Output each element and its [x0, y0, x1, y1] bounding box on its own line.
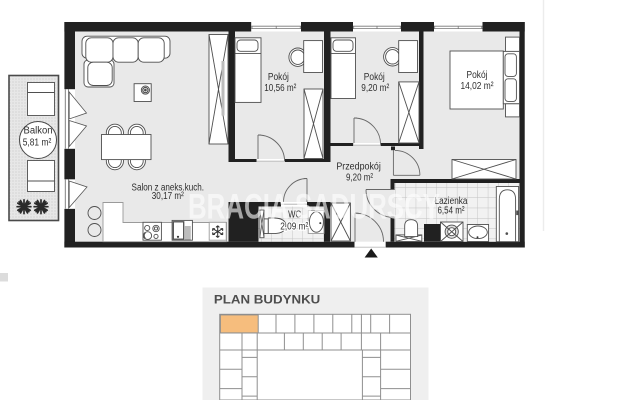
svg-text:30,17 m²: 30,17 m² [152, 191, 185, 202]
svg-text:BRACIA SADURSCY: BRACIA SADURSCY [188, 188, 440, 227]
svg-text:14,02 m²: 14,02 m² [461, 81, 495, 92]
svg-text:9,20 m²: 9,20 m² [346, 172, 374, 183]
svg-text:Pokój: Pokój [364, 72, 385, 83]
svg-text:10,56 m²: 10,56 m² [264, 83, 297, 94]
svg-text:6,54 m²: 6,54 m² [438, 205, 466, 216]
svg-text:Balkon: Balkon [24, 126, 53, 137]
svg-text:Pokój: Pokój [467, 70, 488, 81]
svg-text:Przedpokój: Przedpokój [336, 162, 381, 173]
svg-text:9,20 m²: 9,20 m² [361, 83, 390, 94]
svg-text:PLAN BUDYNKU: PLAN BUDYNKU [214, 293, 321, 307]
svg-text:5,81 m²: 5,81 m² [23, 138, 52, 149]
svg-text:Pokój: Pokój [268, 72, 289, 83]
